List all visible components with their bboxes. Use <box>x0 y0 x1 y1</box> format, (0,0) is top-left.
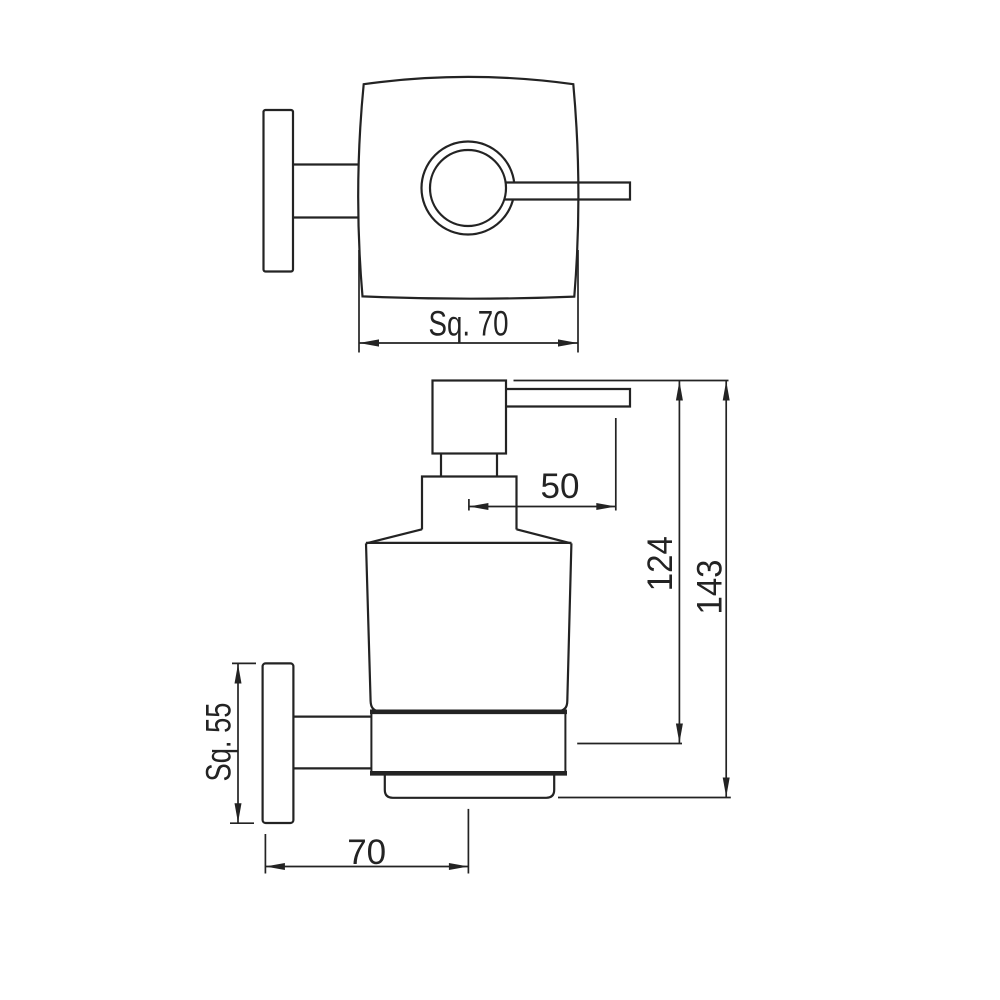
svg-text:Sq. 55: Sq. 55 <box>200 703 239 782</box>
svg-text:143: 143 <box>690 560 729 615</box>
svg-text:124: 124 <box>641 536 680 591</box>
svg-text:Sq. 70: Sq. 70 <box>429 304 509 343</box>
svg-text:70: 70 <box>347 833 386 872</box>
svg-text:50: 50 <box>541 467 580 506</box>
